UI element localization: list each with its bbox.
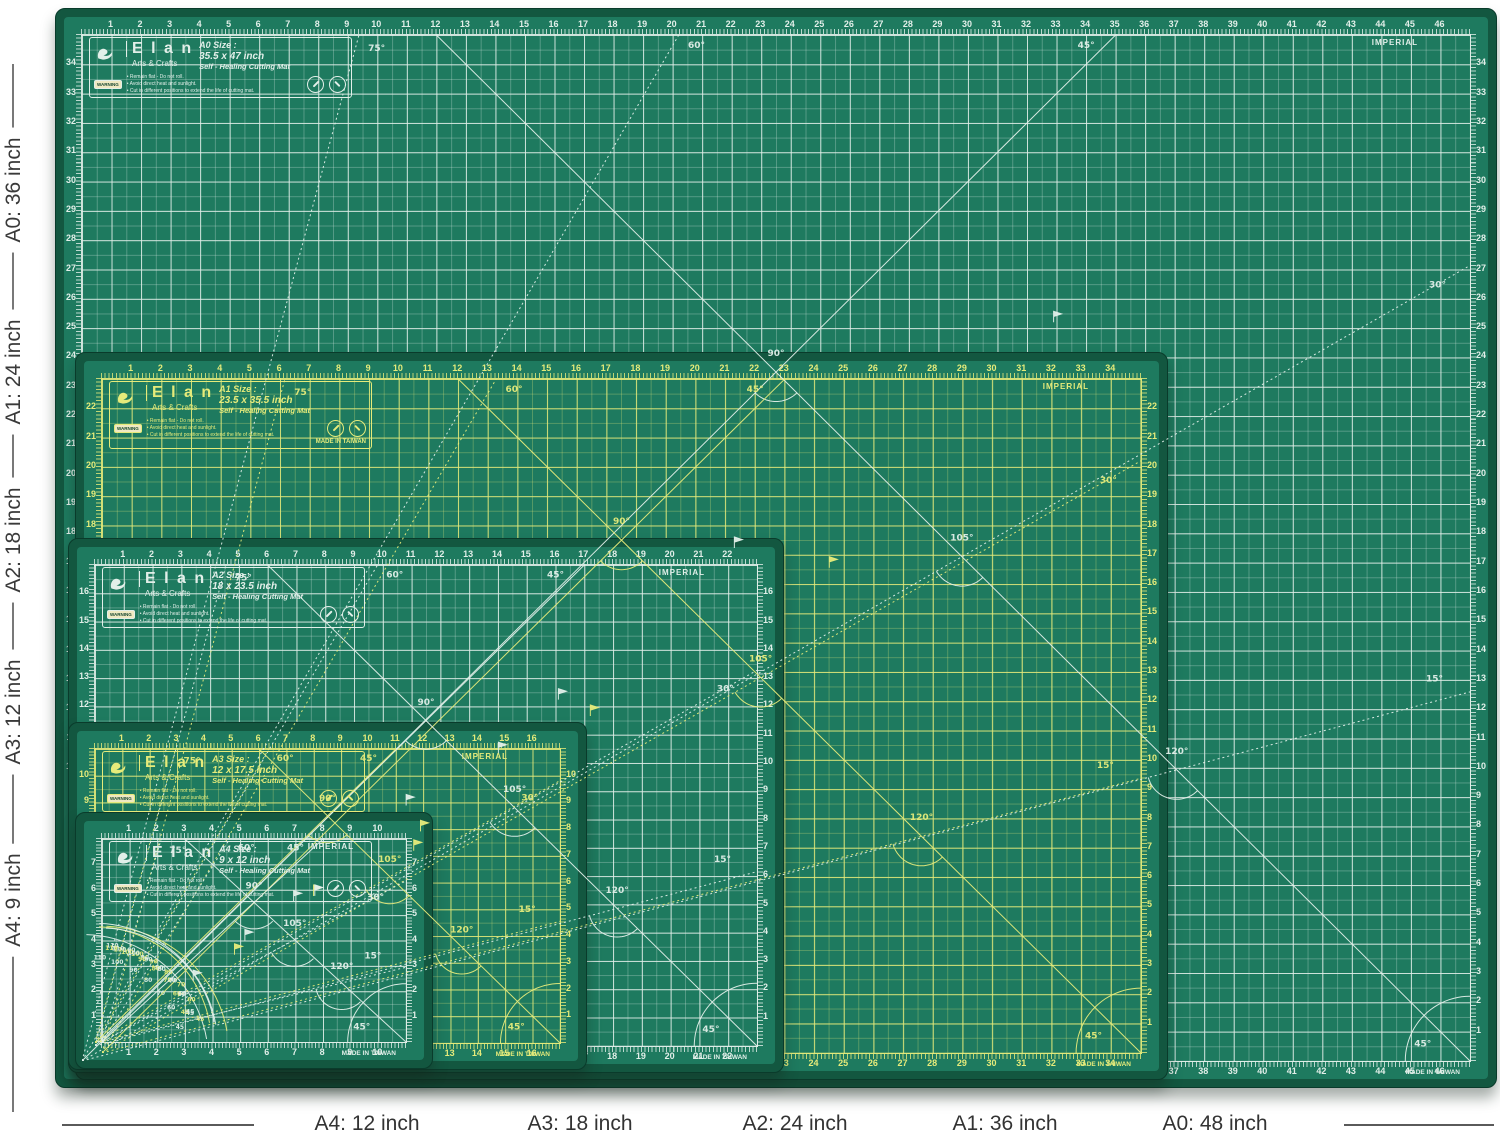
angle-label: 45°: [1078, 41, 1095, 51]
ruler-number: 34: [64, 58, 76, 67]
ruler-number: 20: [663, 20, 681, 29]
ruler-number: 8: [1476, 820, 1488, 829]
angle-arc: [436, 954, 481, 974]
brand-name: E l a n: [126, 41, 193, 57]
brand-subtitle: Arts & Crafts: [146, 403, 213, 413]
ruler-number: 13: [456, 20, 474, 29]
ruler-number: 7: [279, 20, 297, 29]
angle-label: 120°: [330, 962, 353, 972]
mat-height-label-a1: A1: 24 inch: [2, 309, 26, 434]
angle-label: 30°: [521, 794, 538, 804]
flag-marker-icon: [421, 820, 429, 831]
warning-badge: WARNING: [114, 884, 142, 893]
angle-label: 15°: [364, 951, 381, 961]
care-bullet: • Cut in different positions to extend t…: [127, 88, 302, 95]
ruler-number: 33: [64, 88, 76, 97]
angle-label: 45°: [1085, 1031, 1102, 1041]
angle-label: 60°: [386, 571, 403, 581]
angle-arc: [1148, 778, 1197, 800]
size-dimensions: 18 x 23.5 inch: [212, 581, 359, 592]
ruler-number: 12: [1476, 703, 1488, 712]
ruler-number: 3: [161, 20, 179, 29]
size-dimensions: 9 x 12 inch: [219, 855, 366, 866]
ruler-number: 28: [64, 234, 76, 243]
swan-logo-icon: [114, 386, 136, 408]
protractor-number: 45: [186, 1008, 194, 1015]
brand-subtitle: Arts & Crafts: [139, 773, 206, 783]
ruler-number: 4: [190, 20, 208, 29]
ruler-number: 3: [1476, 967, 1488, 976]
swan-logo-icon: [107, 756, 129, 778]
craft-knife-icon: [329, 76, 346, 93]
product-name: Self - Healing Cutting Mat: [219, 407, 366, 415]
ruler-number: 21: [1476, 439, 1488, 448]
ruler-number: 35: [1106, 20, 1124, 29]
ruler-number: 42: [1312, 1067, 1330, 1076]
angle-label: 90°: [417, 698, 434, 708]
ruler-number: 29: [64, 205, 76, 214]
care-bullet: • Avoid direct heat and sunlight.: [140, 611, 315, 618]
angle-label: 90°: [613, 517, 630, 527]
care-bullet: • Remain flat - Do not roll.: [140, 604, 315, 611]
warning-badge: WARNING: [114, 424, 142, 433]
brand-name: E l a n: [146, 845, 213, 861]
care-bullet: • Cut in different positions to extend t…: [147, 432, 322, 439]
ruler-number: 34: [1076, 20, 1094, 29]
angle-label: 45°: [353, 1022, 370, 1032]
angle-label: 75°: [368, 44, 385, 54]
brand-name: E l a n: [139, 571, 206, 587]
ruler-number: 30: [1476, 176, 1488, 185]
ruler-number: 6: [249, 20, 267, 29]
size-dimensions: 23.5 x 35.5 inch: [219, 395, 366, 406]
angle-label: 30°: [1100, 476, 1117, 486]
ruler-number: 29: [928, 20, 946, 29]
ruler-number: 44: [1371, 1067, 1389, 1076]
ruler-number: 33: [1476, 88, 1488, 97]
angle-label: 45°: [702, 1025, 719, 1035]
ruler-number: 36: [1135, 20, 1153, 29]
ruler-number: 26: [1476, 293, 1488, 302]
ruler-number: 5: [220, 20, 238, 29]
mat-a4-grid: 75°60°45°30°15°90°105°120°45°11010090807…: [101, 838, 407, 1043]
ruler-number: 22: [722, 20, 740, 29]
ruler-number: 10: [1476, 762, 1488, 771]
ruler-number: 31: [64, 146, 76, 155]
angle-arc: [106, 928, 214, 1022]
ruler-number: 44: [1371, 20, 1389, 29]
size-title: A3 Size :: [212, 755, 359, 765]
ruler-number: 9: [338, 20, 356, 29]
protractor-number: 100: [127, 950, 140, 957]
angle-arc: [316, 990, 360, 1010]
rotary-cutter-icon: [320, 606, 337, 623]
care-bullet: • Avoid direct heat and sunlight.: [140, 795, 315, 802]
size-title: A2 Size :: [212, 571, 359, 581]
angle-label: 105°: [283, 919, 306, 929]
angle-label: 45°: [747, 385, 764, 395]
ruler-number: 2: [131, 20, 149, 29]
protractor-number: 60: [178, 991, 186, 998]
ruler-number: 40: [1253, 20, 1271, 29]
angle-label: 90°: [767, 349, 784, 359]
angle-arc: [235, 921, 272, 929]
mat-height-label-a2: A2: 18 inch: [2, 477, 26, 602]
ruler-number: 19: [633, 20, 651, 29]
angle-label: 15°: [1097, 761, 1114, 771]
cutting-mat-a4: 75°60°45°30°15°90°105°120°45°11010090807…: [75, 812, 433, 1069]
ruler-number: 16: [1476, 586, 1488, 595]
ruler-number: 27: [1476, 264, 1488, 273]
angle-label: 120°: [1165, 747, 1188, 757]
angle-arc: [406, 741, 446, 749]
ruler-number: 28: [899, 20, 917, 29]
made-in-taiwan-label: MADE IN TAIWAN: [114, 439, 366, 445]
ruler-number: 14: [485, 20, 503, 29]
ruler-number: 23: [1476, 381, 1488, 390]
ruler-number: 17: [574, 20, 592, 29]
rotary-cutter-icon: [320, 790, 337, 807]
protractor-number: 80: [157, 966, 165, 973]
care-bullet: • Avoid direct heat and sunlight.: [147, 425, 322, 432]
warning-badge: WARNING: [107, 794, 135, 803]
swan-logo-icon: [107, 572, 129, 594]
care-bullet: • Cut in different positions to extend t…: [147, 892, 322, 899]
brand-logo-box: E l a n Arts & Crafts A0 Size : 35.5 x 4…: [89, 37, 352, 98]
product-image: 75°60°45°30°15°90°105°120°45°11010090807…: [0, 0, 1500, 1137]
ruler-number: 26: [840, 20, 858, 29]
angle-label: 45°: [547, 571, 564, 581]
craft-knife-icon: [342, 790, 359, 807]
ruler-number: 24: [781, 20, 799, 29]
ruler-number: 32: [1476, 117, 1488, 126]
ruler-number: 19: [1476, 498, 1488, 507]
ruler-number: 32: [1017, 20, 1035, 29]
angle-label: 120°: [605, 886, 628, 896]
ruler-number: 9: [1476, 791, 1488, 800]
brand-logo-box: E l a n Arts & Crafts A3 Size : 12 x 17.…: [102, 751, 365, 812]
product-name: Self - Healing Cutting Mat: [219, 867, 366, 875]
ruler-number: 33: [1047, 20, 1065, 29]
ruler-number: 37: [1165, 20, 1183, 29]
ruler-number: 31: [1476, 146, 1488, 155]
angle-label: 30°: [1429, 280, 1446, 290]
ruler-number: 1: [1476, 1026, 1488, 1035]
mat-width-label-a4: A4: 12 inch: [314, 1112, 419, 1136]
care-bullet: • Cut in different positions to extend t…: [140, 618, 315, 625]
ruler-number: 41: [1283, 1067, 1301, 1076]
angle-label: 120°: [450, 925, 473, 935]
ruler-number: 29: [1476, 205, 1488, 214]
angle-label: 45°: [1414, 1039, 1431, 1049]
flag-marker-icon: [558, 689, 566, 700]
ruler-number: 13: [1476, 674, 1488, 683]
brand-name: E l a n: [139, 755, 206, 771]
mat-width-label-a3: A3: 18 inch: [527, 1112, 632, 1136]
ruler-number: 14: [1476, 645, 1488, 654]
ruler-number: 38: [1194, 20, 1212, 29]
mat-a4-surface: 75°60°45°30°15°90°105°120°45°11010090807…: [84, 821, 424, 1060]
brand-logo-box: E l a n Arts & Crafts A1 Size : 23.5 x 3…: [109, 381, 372, 449]
ruler-number: 12: [426, 20, 444, 29]
ruler-number: 15: [515, 20, 533, 29]
ruler-number: 28: [1476, 234, 1488, 243]
imperial-label: IMPERIAL: [1372, 38, 1418, 47]
bottom-dimension-line-left: [62, 1124, 254, 1126]
ruler-number: 38: [1194, 1067, 1212, 1076]
ruler-number: 40: [1253, 1067, 1271, 1076]
flag-marker-icon: [829, 557, 837, 568]
ruler-number: 26: [64, 293, 76, 302]
ruler-number: 25: [810, 20, 828, 29]
care-bullet: • Cut in different positions to extend t…: [140, 802, 315, 809]
flag-marker-icon: [1054, 311, 1062, 322]
size-dimensions: 35.5 x 47 inch: [199, 51, 346, 62]
ruler-number: 15: [1476, 615, 1488, 624]
ruler-right: 1234567891011121314151617181920212223242…: [1471, 34, 1488, 1062]
brand-name: E l a n: [146, 385, 213, 401]
ruler-number: 8: [308, 20, 326, 29]
imperial-label: IMPERIAL: [308, 842, 354, 851]
mat-height-label-a3: A3: 12 inch: [2, 649, 26, 774]
swan-logo-icon: [94, 42, 116, 64]
ruler-number: 25: [1476, 322, 1488, 331]
angle-label: 60°: [688, 41, 705, 51]
care-bullet: • Remain flat - Do not roll.: [147, 418, 322, 425]
ruler-number: 16: [545, 20, 563, 29]
protractor-number: 90: [144, 957, 152, 964]
angle-arc: [272, 953, 314, 966]
ruler-number: 18: [1476, 527, 1488, 536]
warning-badge: WARNING: [107, 610, 135, 619]
product-name: Self - Healing Cutting Mat: [199, 63, 346, 71]
angle-arc: [590, 916, 638, 937]
craft-knife-icon: [349, 880, 366, 897]
ruler-number: 10: [367, 20, 385, 29]
brand-subtitle: Arts & Crafts: [139, 589, 206, 599]
ruler-number: 41: [1283, 20, 1301, 29]
size-title: A1 Size :: [219, 385, 366, 395]
ruler-number: 42: [1312, 20, 1330, 29]
ruler-number: 32: [64, 117, 76, 126]
ruler-number: 45: [1401, 1067, 1419, 1076]
ruler-number: 39: [1224, 20, 1242, 29]
ruler-number: 21: [692, 20, 710, 29]
rotary-cutter-icon: [327, 420, 344, 437]
mat-height-label-a0: A0: 36 inch: [2, 127, 26, 252]
ruler-number: 31: [987, 20, 1005, 29]
size-title: A0 Size :: [199, 41, 346, 51]
ruler-number: 2: [1476, 996, 1488, 1005]
product-name: Self - Healing Cutting Mat: [212, 777, 359, 785]
ruler-number: 1: [102, 20, 120, 29]
ruler-number: 6: [1476, 879, 1488, 888]
angle-label: 15°: [1426, 675, 1443, 685]
mat-width-label-a0: A0: 48 inch: [1162, 1112, 1267, 1136]
ruler-number: 46: [1430, 20, 1448, 29]
bottom-dimension-line-right: [1344, 1124, 1494, 1126]
care-bullet: • Avoid direct heat and sunlight.: [147, 885, 322, 892]
ruler-number: 30: [958, 20, 976, 29]
ruler-number: 18: [604, 20, 622, 29]
ruler-number: 20: [1476, 469, 1488, 478]
flag-marker-icon: [245, 930, 253, 941]
ruler-number: 43: [1342, 1067, 1360, 1076]
angle-label: 15°: [519, 905, 536, 915]
ruler-number: 43: [1342, 20, 1360, 29]
angle-label: 60°: [506, 385, 523, 395]
angle-label: 45°: [508, 1023, 525, 1033]
ruler-number: 11: [397, 20, 415, 29]
angle-label: 120°: [910, 813, 933, 823]
angle-label: 15°: [714, 855, 731, 865]
care-bullet: • Remain flat - Do not roll.: [127, 74, 302, 81]
ruler-number: 34: [1476, 58, 1488, 67]
angle-label: 30°: [717, 684, 734, 694]
angle-arc: [893, 844, 942, 866]
imperial-label: IMPERIAL: [659, 568, 705, 577]
ruler-number: 25: [64, 322, 76, 331]
care-bullet: • Avoid direct heat and sunlight.: [127, 81, 302, 88]
ruler-number: 22: [1476, 410, 1488, 419]
warning-badge: WARNING: [94, 80, 122, 89]
ruler-number: 30: [64, 176, 76, 185]
protractor-number: 110: [112, 946, 125, 953]
ruler-number: 23: [751, 20, 769, 29]
size-dimensions: 12 x 17.5 inch: [212, 765, 359, 776]
swan-logo-icon: [114, 846, 136, 868]
imperial-label: IMPERIAL: [1043, 382, 1089, 391]
care-bullet: • Remain flat - Do not roll.: [147, 878, 322, 885]
rotary-cutter-icon: [307, 76, 324, 93]
ruler-number: 39: [1224, 1067, 1242, 1076]
ruler-number: 5: [1476, 908, 1488, 917]
ruler-number: 27: [64, 264, 76, 273]
ruler-number: 27: [869, 20, 887, 29]
craft-knife-icon: [349, 420, 366, 437]
ruler-number: 46: [1430, 1067, 1448, 1076]
mat-width-label-a1: A1: 36 inch: [952, 1112, 1057, 1136]
craft-knife-icon: [342, 606, 359, 623]
imperial-label: IMPERIAL: [462, 752, 508, 761]
ruler-number: 17: [1476, 557, 1488, 566]
ruler-number: 45: [1401, 20, 1419, 29]
care-bullet: • Remain flat - Do not roll.: [140, 788, 315, 795]
ruler-number: 7: [1476, 850, 1488, 859]
ruler-number: 11: [1476, 733, 1488, 742]
brand-subtitle: Arts & Crafts: [146, 863, 213, 873]
ruler-number: 4: [1476, 938, 1488, 947]
product-name: Self - Healing Cutting Mat: [212, 593, 359, 601]
brand-logo-box: E l a n Arts & Crafts A2 Size : 18 x 23.…: [102, 567, 365, 628]
brand-subtitle: Arts & Crafts: [126, 59, 193, 69]
rotary-cutter-icon: [327, 880, 344, 897]
mat-width-label-a2: A2: 24 inch: [742, 1112, 847, 1136]
ruler-top: 1234567891011121314151617181920212223242…: [81, 17, 1471, 34]
protractor-number: 70: [169, 977, 177, 984]
mat-height-label-a4: A4: 9 inch: [2, 843, 26, 956]
ruler-number: 24: [1476, 351, 1488, 360]
angle-arc: [348, 984, 406, 1042]
